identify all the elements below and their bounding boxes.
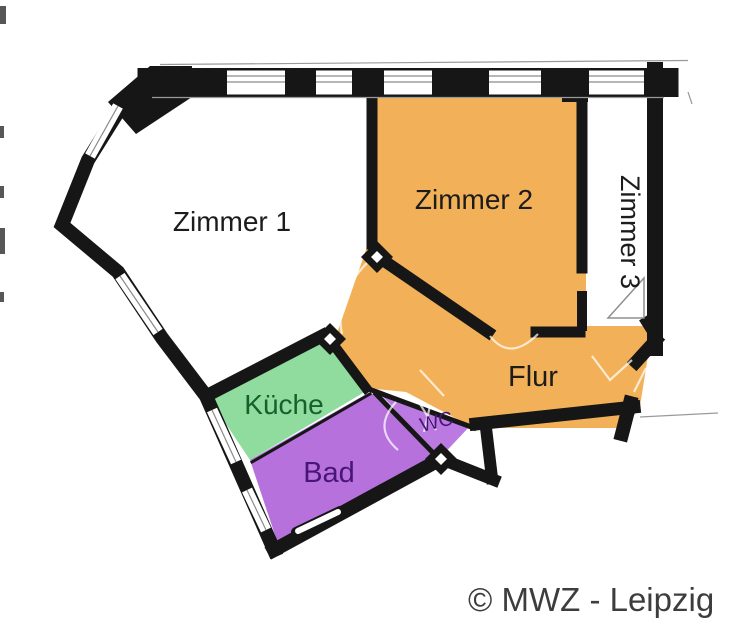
room-label-zimmer3: Zimmer 3: [615, 175, 645, 289]
room-label-zimmer2: Zimmer 2: [415, 184, 533, 215]
scan-artifact: [0, 6, 6, 24]
room-label-zimmer1: Zimmer 1: [173, 206, 291, 237]
scan-artifact: [0, 292, 4, 302]
room-label-kueche: Küche: [244, 389, 323, 420]
scan-artifact: [0, 228, 5, 254]
copyright-text: © MWZ - Leipzig: [468, 581, 714, 618]
wall-dip-z3: [562, 88, 588, 102]
room-label-bad: Bad: [303, 457, 355, 489]
wall-flur-end-stub: [622, 403, 630, 434]
wall-stub-wc: [486, 428, 492, 478]
scan-artifact: [0, 186, 4, 198]
scan-artifact: [0, 126, 4, 138]
floorplan-svg: Zimmer 1 Zimmer 2 Zimmer 3 Flur Küche Ba…: [0, 0, 756, 630]
room-label-flur: Flur: [508, 361, 558, 393]
wall-dip-z1z2: [356, 70, 381, 97]
floorplan-image: Zimmer 1 Zimmer 2 Zimmer 3 Flur Küche Ba…: [0, 0, 756, 630]
